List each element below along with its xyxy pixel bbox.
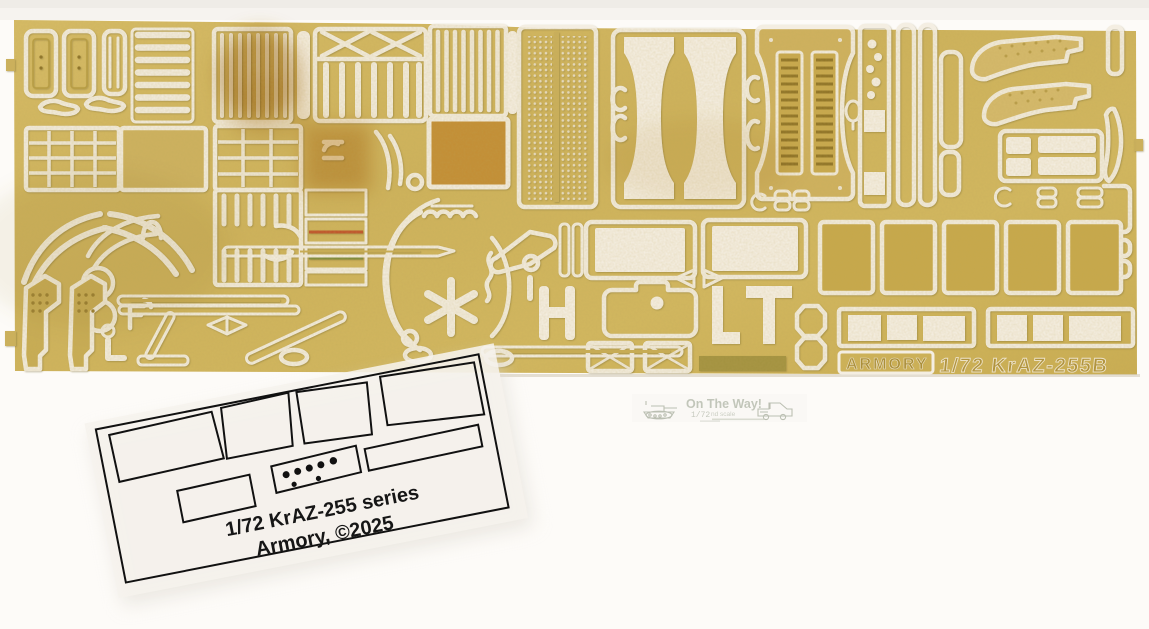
svg-text:1/72: 1/72 xyxy=(691,411,710,420)
svg-text:1/72 KrAZ-255B: 1/72 KrAZ-255B xyxy=(938,355,1109,377)
svg-text:nd scale: nd scale xyxy=(711,411,736,418)
svg-text:On The Way!: On The Way! xyxy=(686,397,762,411)
svg-text:ARMORY: ARMORY xyxy=(846,356,929,373)
